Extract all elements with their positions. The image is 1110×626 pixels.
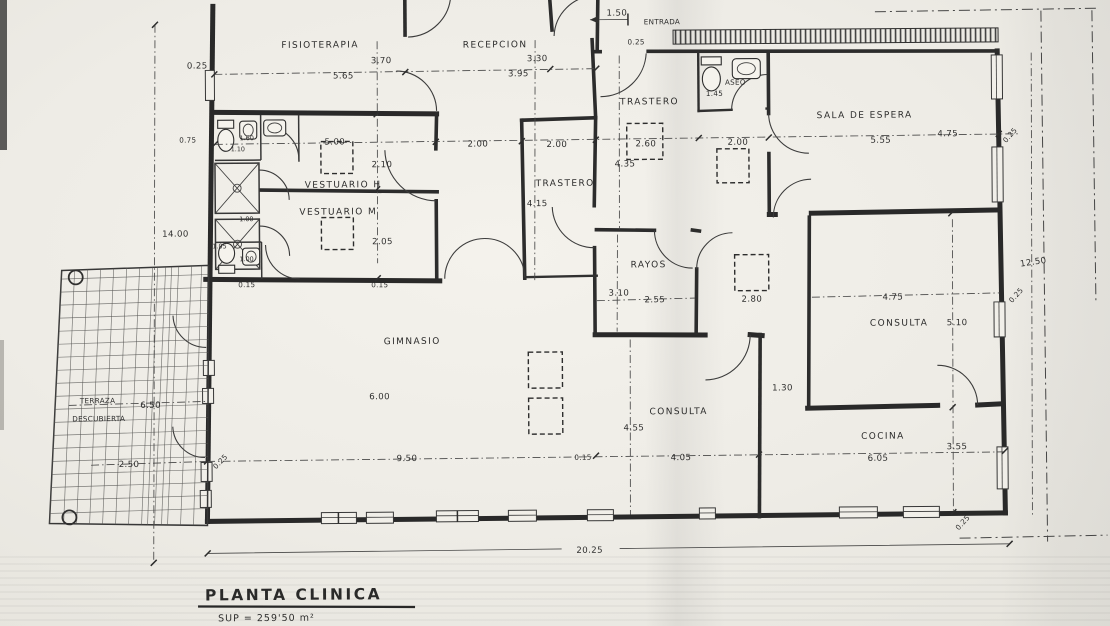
entrada-door-arc [600, 53, 646, 96]
dim-ducha-2: 1.00 [239, 255, 253, 263]
room-label-consulta-derecha: CONSULTA [870, 318, 928, 328]
dim-sala-alto: 4.75 [937, 129, 958, 139]
dim-consulta-centro-alto: 4.55 [623, 423, 644, 433]
plan-title: PLANTA CLINICA [205, 585, 382, 604]
dim-aseo-vest-1: 1.60 [240, 134, 254, 142]
sanitary-fixtures [217, 57, 761, 274]
dim-muro-izquierdo: 0.75 [179, 135, 196, 144]
dim-cocina-alto: 3.55 [947, 442, 968, 452]
room-label-entrada: ENTRADA [644, 17, 680, 26]
dim-aseo-alto: 1.45 [706, 89, 723, 98]
title-underline [198, 605, 415, 609]
dim-pasillo-2: 2.00 [546, 140, 567, 150]
entrance-porch-hatch [673, 28, 998, 44]
dim-recepcion-alto: 3.30 [527, 54, 548, 64]
sink-icon [732, 59, 760, 79]
dim-tabique-gimnasio: 0.15 [574, 453, 591, 462]
title-block: PLANTA CLINICA SUP = 259'50 m² 22'20 [198, 585, 415, 626]
terraza-column-circle-top [69, 270, 83, 284]
dim-gimnasio-ancho: 9.50 [397, 454, 418, 464]
room-label-vestuario-m: VESTUARIO M [299, 207, 377, 218]
dim-gimnasio-alto: 6.00 [369, 392, 390, 402]
scanned-floor-plan-page: FISIOTERAPIA RECEPCION ENTRADA TRASTERO … [0, 0, 1110, 626]
plan-area: SUP = 259'50 m² [218, 613, 315, 625]
room-label-gimnasio: GIMNASIO [384, 337, 441, 347]
dim-trastero-sup-alto: 4.35 [615, 159, 636, 169]
room-label-recepcion: RECEPCION [463, 40, 528, 50]
room-label-terraza: TERRAZA [79, 396, 116, 405]
dim-rayos-ancho: 2.55 [645, 295, 666, 305]
dim-trastero-centro-alto: 4.15 [527, 199, 548, 209]
sink-icon [264, 120, 286, 136]
dim-entrada-ancho: 1.50 [607, 8, 628, 18]
dim-fachada-inferior: 20.25 [576, 546, 603, 556]
toilet-icon [701, 57, 721, 91]
dim-pilar-hall: 2.80 [742, 295, 763, 305]
dim-pasillo-3: 2.00 [727, 138, 748, 148]
dimension-labels: 0.25 5.65 3.70 3.95 3.30 1.50 0.25 1.45 … [116, 6, 1050, 559]
dim-vestuario-h-alto: 2.10 [372, 160, 393, 170]
room-label-rayos: RAYOS [631, 260, 667, 270]
dim-fachada-izquierda: 14.00 [162, 230, 189, 240]
room-label-fisioterapia: FISIOTERAPIA [281, 40, 359, 51]
dim-trastero-sup-ancho: 2.60 [635, 139, 656, 149]
room-label-consulta-centro: CONSULTA [649, 407, 707, 417]
dim-fisioterapia-ancho: 5.65 [333, 71, 354, 81]
dim-fachada-derecha: 12.50 [1019, 256, 1047, 270]
dim-cocina-ancho: 6.05 [868, 454, 889, 464]
room-label-trastero-centro: TRASTERO [535, 179, 595, 189]
dim-consulta-dcha-alto: 5.10 [947, 318, 968, 328]
terraza-column-circle-bottom [62, 510, 76, 524]
dim-consulta-dcha-ancho: 4.75 [882, 293, 903, 303]
dim-paso-consulta: 1.30 [772, 383, 793, 393]
dim-ducha-1: 1.00 [239, 215, 253, 223]
dim-consulta-centro-ancho: 4.05 [671, 453, 692, 463]
dim-tabique-vestuario-2: 0.15 [371, 280, 388, 289]
dim-vestuario-ancho: 5.00 [324, 137, 345, 147]
exterior-walls [204, 0, 1006, 521]
room-label-descubierta: DESCUBIERTA [72, 414, 125, 423]
room-label-cocina: COCINA [861, 432, 905, 442]
dim-entrada-muro: 0.25 [627, 37, 644, 46]
dim-terraza-ancho: 6.50 [140, 401, 161, 411]
room-label-sala-de-espera: SALA DE ESPERA [817, 110, 913, 121]
dim-muro-derecho-sup: 0.25 [1001, 126, 1019, 145]
dim-vestuario-m-alto: 2.05 [372, 237, 393, 247]
dim-pasillo-1: 2.00 [467, 139, 488, 149]
terraza-tiles [48, 265, 211, 526]
room-labels: FISIOTERAPIA RECEPCION ENTRADA TRASTERO … [69, 15, 929, 447]
floor-plan-drawing: FISIOTERAPIA RECEPCION ENTRADA TRASTERO … [0, 0, 1110, 626]
dim-terraza-fondo: 2.50 [119, 460, 140, 470]
room-label-vestuario-h: VESTUARIO H [305, 180, 382, 191]
room-label-aseo: ASEO [725, 78, 746, 87]
dim-tabique-vestuario-1: 0.15 [238, 280, 255, 289]
dim-aseo-vest-2: 1.10 [231, 145, 245, 153]
dim-sala-ancho: 5.55 [870, 136, 891, 146]
dim-muro-derecho-med: 0.25 [1007, 286, 1025, 305]
dimension-ticks [147, 16, 1013, 566]
dim-fisioterapia-alto: 3.70 [371, 56, 392, 66]
dim-rayos-alto: 3.10 [608, 288, 629, 298]
dim-muro-inf-dcho: 0.25 [954, 513, 972, 532]
room-label-trastero-top: TRASTERO [619, 97, 679, 107]
dim-aseo-vest-3: 1.05 [212, 242, 226, 250]
dim-recepcion-ancho: 3.95 [508, 69, 529, 79]
dim-muro-sup-izq: 0.25 [187, 61, 208, 71]
